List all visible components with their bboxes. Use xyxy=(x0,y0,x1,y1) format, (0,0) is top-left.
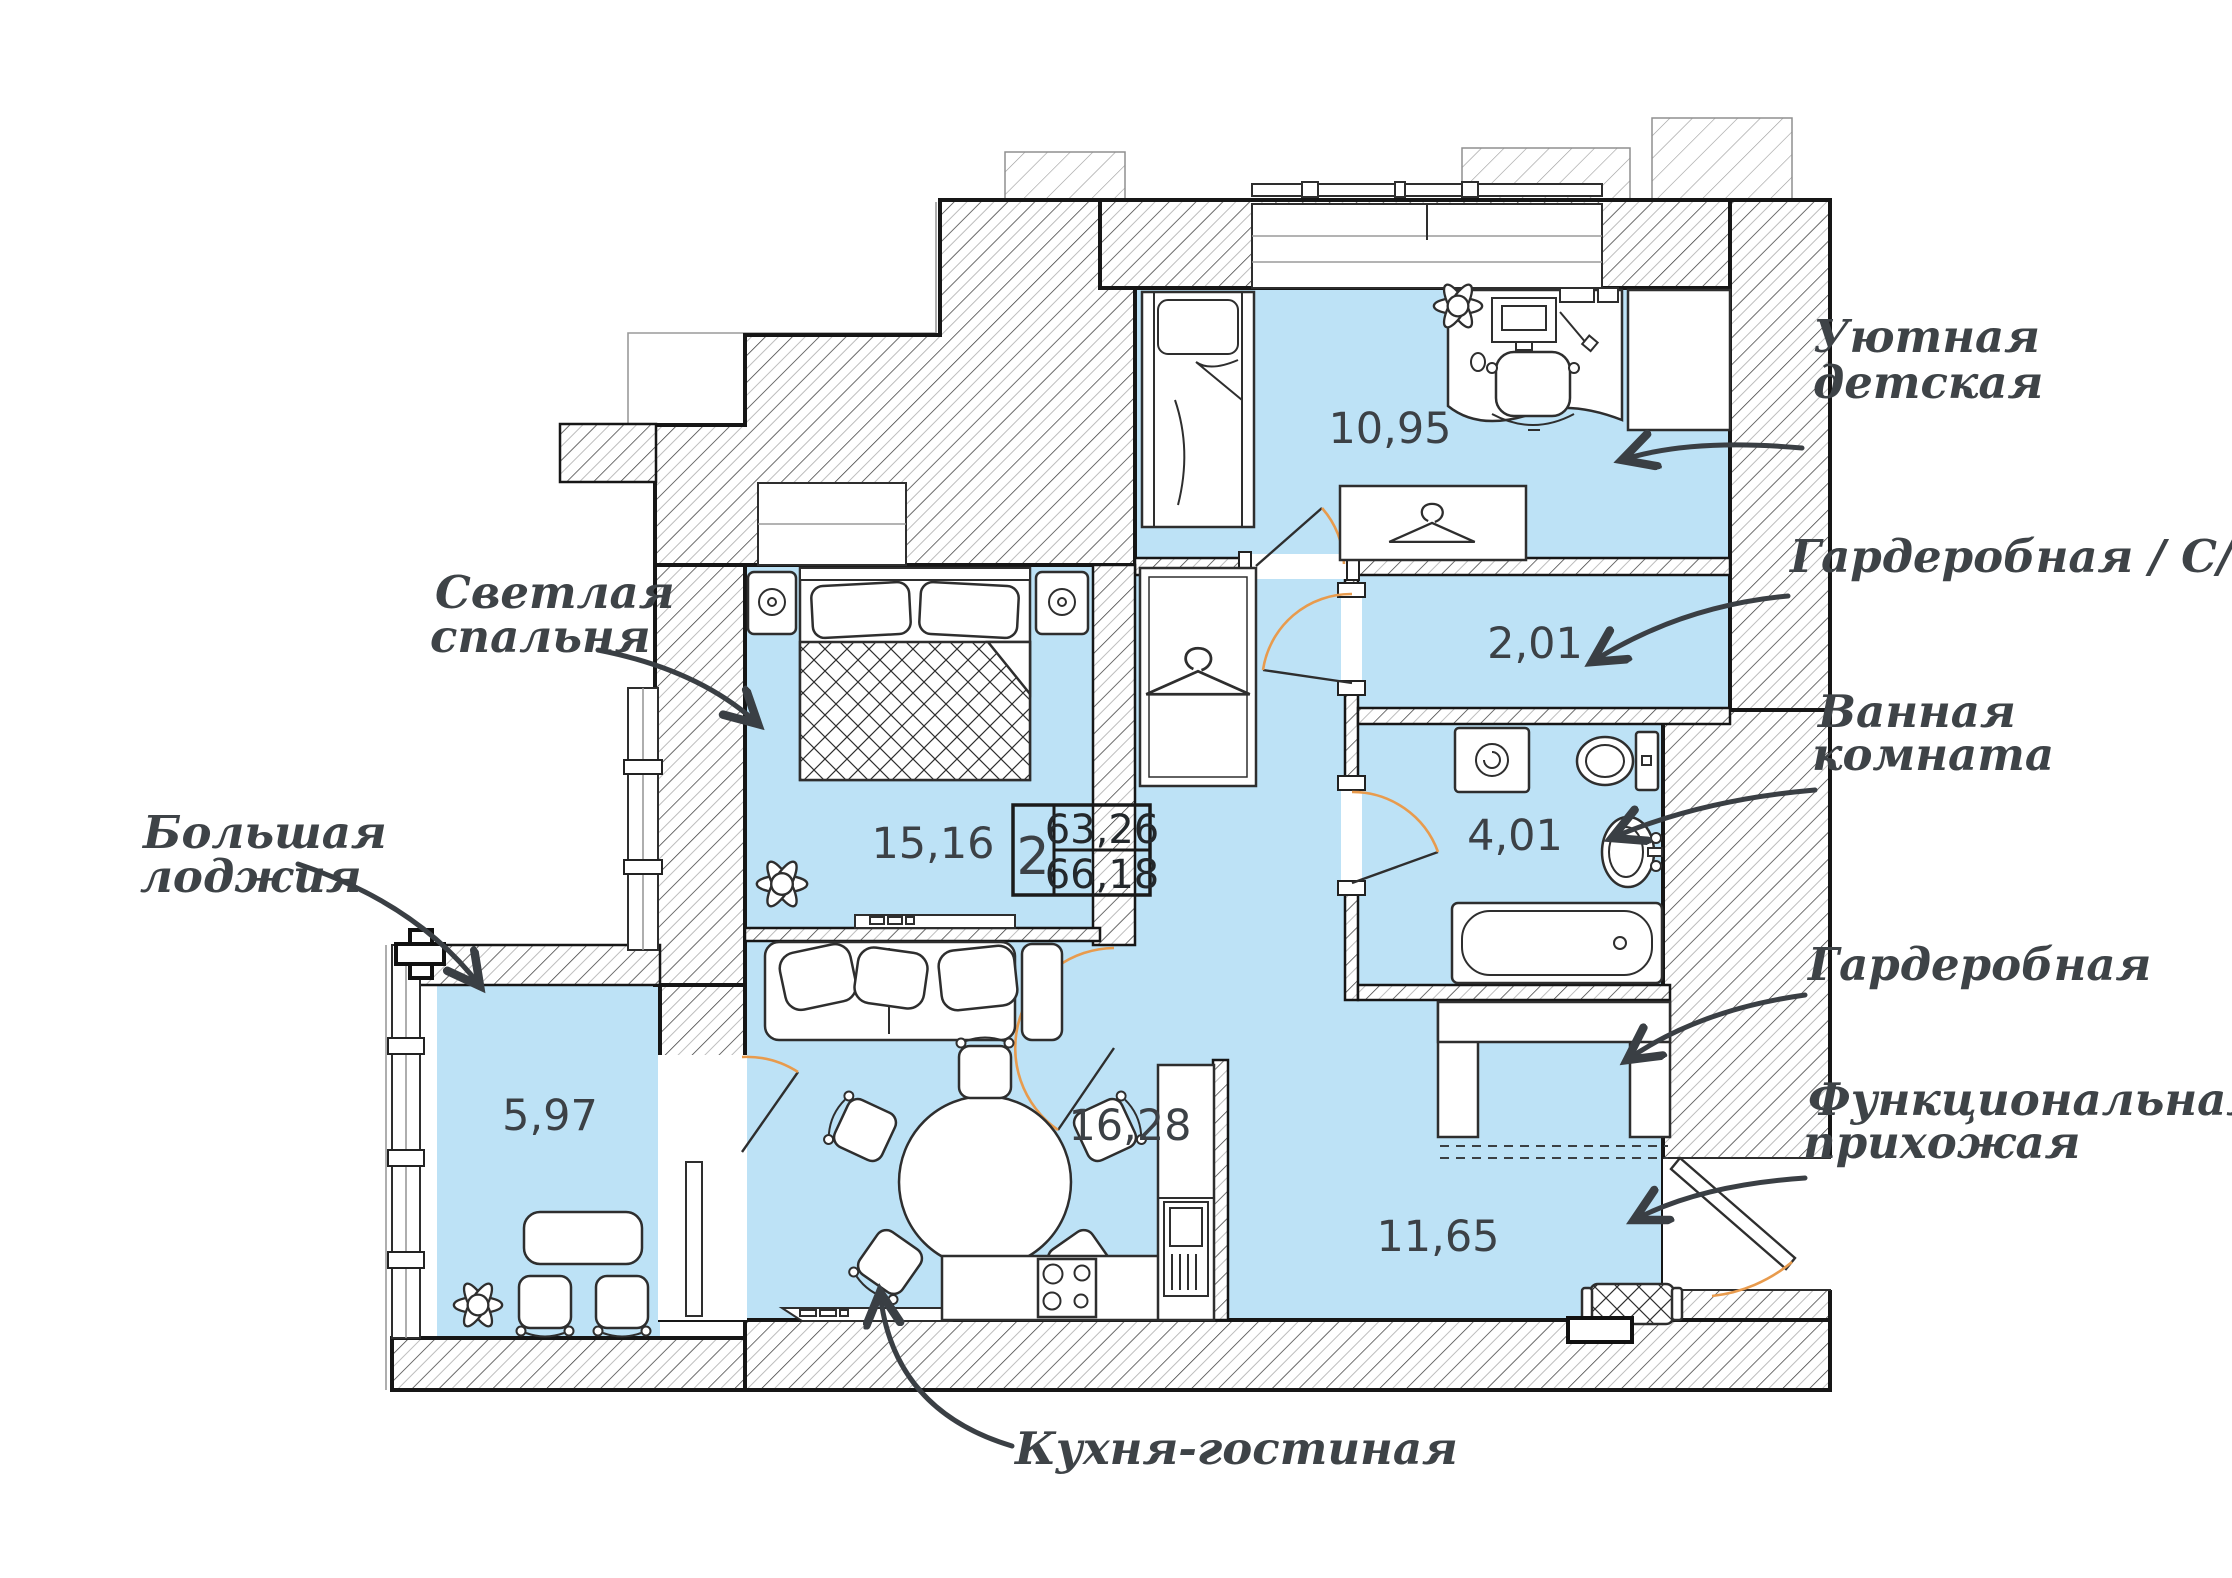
rail-post xyxy=(1395,182,1405,197)
area-wardrobe-wc: 2,01 xyxy=(1487,619,1583,669)
area-hallway: 11,65 xyxy=(1376,1212,1499,1262)
stove xyxy=(1038,1259,1096,1317)
floor-passage xyxy=(1093,940,1135,1060)
bathtub xyxy=(1452,903,1662,983)
nightstand-left xyxy=(748,572,796,634)
callout-wardrobe-wc-line1: Гардеробная / С/у xyxy=(1788,530,2232,583)
cabinet-children xyxy=(1628,290,1730,430)
loggia-window-glazing xyxy=(686,1162,702,1316)
callout-children-line2: детская xyxy=(1813,356,2043,409)
rail-post xyxy=(1462,182,1478,197)
exterior-slab xyxy=(1652,118,1792,202)
living-area: 63,26 xyxy=(1045,807,1160,853)
tv-bedroom xyxy=(855,915,1015,928)
loggia-chair xyxy=(517,1276,574,1337)
glazing-mullion xyxy=(388,1150,424,1166)
nightstand-right xyxy=(1036,572,1088,634)
door-opening-bathroom xyxy=(1341,788,1362,883)
wall-tv-halfwall xyxy=(745,928,1100,941)
wall-right-upper xyxy=(1730,200,1830,712)
washing-machine xyxy=(1455,728,1529,792)
area-kitchen-living: 16,28 xyxy=(1068,1101,1191,1151)
window-mullion xyxy=(624,860,662,874)
area-bedroom: 15,16 xyxy=(871,819,994,869)
door-jamb xyxy=(1338,776,1365,790)
sofa xyxy=(765,941,1019,1040)
wall-wc-bath xyxy=(1358,708,1730,724)
glazing-mullion xyxy=(388,1038,424,1054)
area-children: 10,95 xyxy=(1328,404,1451,454)
bed-children xyxy=(1142,292,1254,527)
door-opening-loggia xyxy=(658,1055,747,1158)
side-table xyxy=(1022,944,1062,1040)
wall-bottom xyxy=(745,1320,1830,1390)
callout-hallway-line2: прихожая xyxy=(1803,1116,2080,1169)
window-mullion xyxy=(624,760,662,774)
glazing-corner-joint xyxy=(396,944,444,964)
double-bed xyxy=(800,568,1030,780)
rail-post xyxy=(1302,182,1318,197)
loggia-chair xyxy=(594,1276,651,1337)
glazing-mullion xyxy=(388,1252,424,1268)
wardrobe-hall xyxy=(1140,568,1256,786)
wall-bath-hall xyxy=(1358,985,1670,1000)
door-opening-wardrobe-wc xyxy=(1341,595,1362,683)
area-bathroom: 4,01 xyxy=(1467,811,1563,861)
wall-corner-block xyxy=(560,424,656,482)
door-jamb xyxy=(1338,881,1365,895)
total-area: 66,18 xyxy=(1045,852,1160,898)
area-loggia: 5,97 xyxy=(502,1091,598,1141)
floor-plan-page: 10,95 2,01 4,01 15,16 16,28 11,65 5,97 2… xyxy=(0,0,2232,1578)
wall-bottom-loggia xyxy=(392,1338,745,1390)
callout-kitchen-line1: Кухня-гостиная xyxy=(1013,1422,1458,1475)
floor-plan: 10,95 2,01 4,01 15,16 16,28 11,65 5,97 2… xyxy=(0,0,2232,1578)
callout-wardrobe-line1: Гардеробная xyxy=(1806,938,2151,991)
exterior-slab xyxy=(1005,152,1125,200)
wall-bedroom-left xyxy=(655,565,745,985)
loggia-table xyxy=(524,1212,642,1264)
closet-children xyxy=(1340,486,1526,560)
toilet xyxy=(1577,732,1658,790)
callout-bathroom-line2: комната xyxy=(1812,728,2054,781)
entry-threshold xyxy=(1568,1318,1632,1342)
